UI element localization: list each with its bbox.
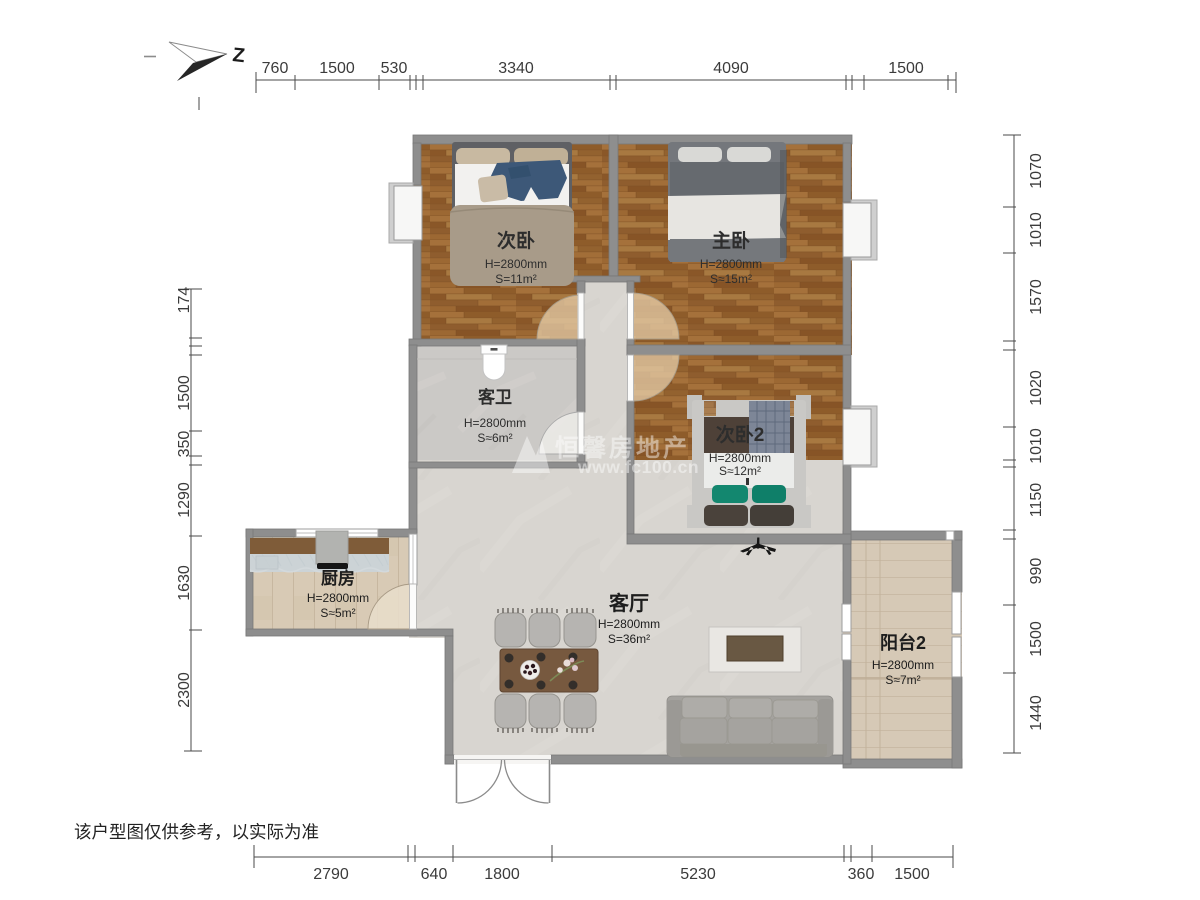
- svg-text:1440: 1440: [1028, 695, 1045, 731]
- svg-text:1010: 1010: [1028, 428, 1045, 464]
- svg-text:客卫: 客卫: [477, 387, 512, 407]
- svg-text:S≈12m²: S≈12m²: [719, 464, 761, 478]
- svg-text:530: 530: [381, 60, 408, 77]
- svg-text:www.fc100.cn: www.fc100.cn: [577, 457, 699, 477]
- svg-text:4090: 4090: [713, 60, 749, 77]
- svg-text:1500: 1500: [894, 866, 930, 883]
- svg-text:H=2800mm: H=2800mm: [307, 591, 369, 605]
- svg-text:1010: 1010: [1028, 212, 1045, 248]
- svg-text:350: 350: [176, 431, 193, 458]
- svg-text:S=36m²: S=36m²: [608, 632, 650, 646]
- svg-text:2790: 2790: [313, 866, 349, 883]
- svg-text:2300: 2300: [176, 672, 193, 708]
- svg-text:次卧2: 次卧2: [716, 423, 765, 446]
- svg-text:1500: 1500: [319, 60, 355, 77]
- svg-text:990: 990: [1028, 558, 1045, 585]
- svg-text:H=2800mm: H=2800mm: [709, 451, 771, 465]
- svg-text:S≈15m²: S≈15m²: [710, 272, 752, 286]
- svg-text:H=2800mm: H=2800mm: [464, 416, 526, 430]
- svg-text:1020: 1020: [1028, 370, 1045, 406]
- svg-text:S≈7m²: S≈7m²: [885, 673, 920, 687]
- svg-text:5230: 5230: [680, 866, 716, 883]
- svg-text:360: 360: [848, 866, 875, 883]
- svg-text:3340: 3340: [498, 60, 534, 77]
- svg-text:该户型图仅供参考，以实际为准: 该户型图仅供参考，以实际为准: [74, 822, 319, 842]
- svg-text:1800: 1800: [484, 866, 520, 883]
- svg-text:1630: 1630: [176, 565, 193, 601]
- svg-text:厨房: 厨房: [321, 568, 355, 588]
- svg-text:S≈6m²: S≈6m²: [477, 431, 512, 445]
- svg-text:H=2800mm: H=2800mm: [700, 257, 762, 271]
- svg-text:H=2800mm: H=2800mm: [485, 257, 547, 271]
- svg-text:1500: 1500: [1028, 621, 1045, 657]
- svg-text:H=2800mm: H=2800mm: [598, 617, 660, 631]
- svg-text:S≈5m²: S≈5m²: [320, 606, 355, 620]
- svg-text:S=11m²: S=11m²: [495, 272, 536, 286]
- svg-text:客厅: 客厅: [608, 591, 649, 615]
- svg-text:1290: 1290: [176, 482, 193, 518]
- svg-text:1150: 1150: [1028, 483, 1045, 518]
- svg-text:H=2800mm: H=2800mm: [872, 658, 934, 672]
- svg-text:Z: Z: [231, 44, 245, 67]
- svg-text:640: 640: [421, 866, 448, 883]
- svg-text:760: 760: [262, 60, 289, 77]
- svg-text:174: 174: [176, 287, 193, 314]
- svg-text:次卧: 次卧: [497, 229, 535, 252]
- svg-text:1570: 1570: [1028, 279, 1045, 315]
- svg-text:1500: 1500: [176, 375, 193, 411]
- svg-text:阳台2: 阳台2: [880, 632, 926, 653]
- svg-text:1070: 1070: [1028, 153, 1045, 189]
- svg-text:主卧: 主卧: [712, 230, 750, 252]
- svg-text:1500: 1500: [888, 60, 924, 77]
